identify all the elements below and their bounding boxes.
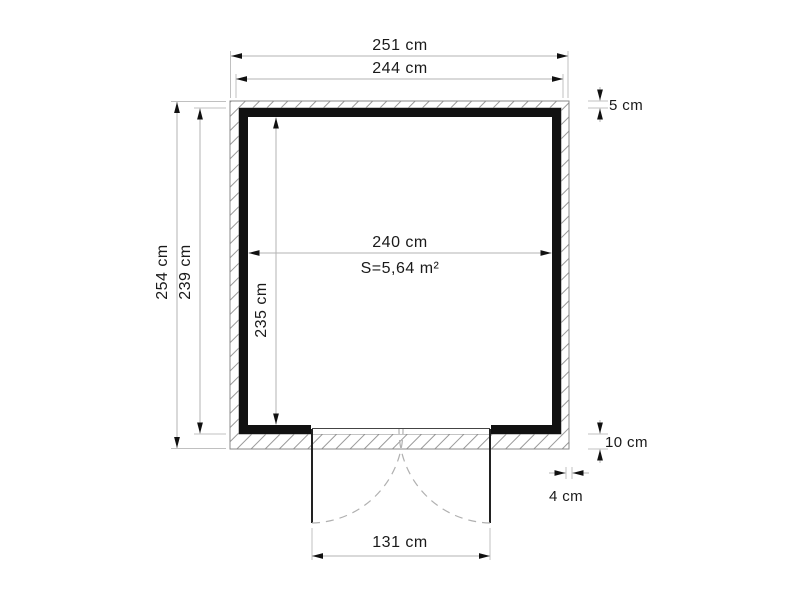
bottom-band-label: 10 cm: [605, 434, 648, 451]
top-band-label: 5 cm: [609, 97, 643, 114]
interior-width-label: 240 cm: [372, 234, 427, 251]
dimension-cladding-thickness: 4 cm: [549, 467, 589, 505]
frame-width-label: 244 cm: [372, 60, 427, 77]
outer-width-label: 251 cm: [372, 37, 427, 54]
floor-plan-canvas: 251 cm 244 cm 254 cm 239 cm 235 cm: [0, 0, 800, 600]
interior-depth-label: 235 cm: [253, 282, 270, 337]
dimension-top-band: 5 cm: [588, 87, 643, 122]
cladding-thickness-label: 4 cm: [549, 488, 583, 505]
floor-area-label: S=5,64 m²: [361, 260, 440, 277]
inner-depth-label: 239 cm: [177, 244, 194, 299]
dimension-door-width: 131 cm: [312, 528, 490, 560]
dimension-interior-width: 240 cm S=5,64 m²: [249, 234, 552, 277]
outer-depth-label: 254 cm: [154, 244, 171, 299]
door-width-label: 131 cm: [372, 534, 427, 551]
dimension-inner-depth: 239 cm: [177, 108, 226, 434]
floor-plan-drawing: 251 cm 244 cm 254 cm 239 cm 235 cm: [0, 0, 800, 600]
dimension-bottom-band: 10 cm: [588, 420, 648, 463]
dimension-frame-width: 244 cm: [236, 60, 563, 98]
dimension-interior-depth: 235 cm: [253, 118, 276, 425]
